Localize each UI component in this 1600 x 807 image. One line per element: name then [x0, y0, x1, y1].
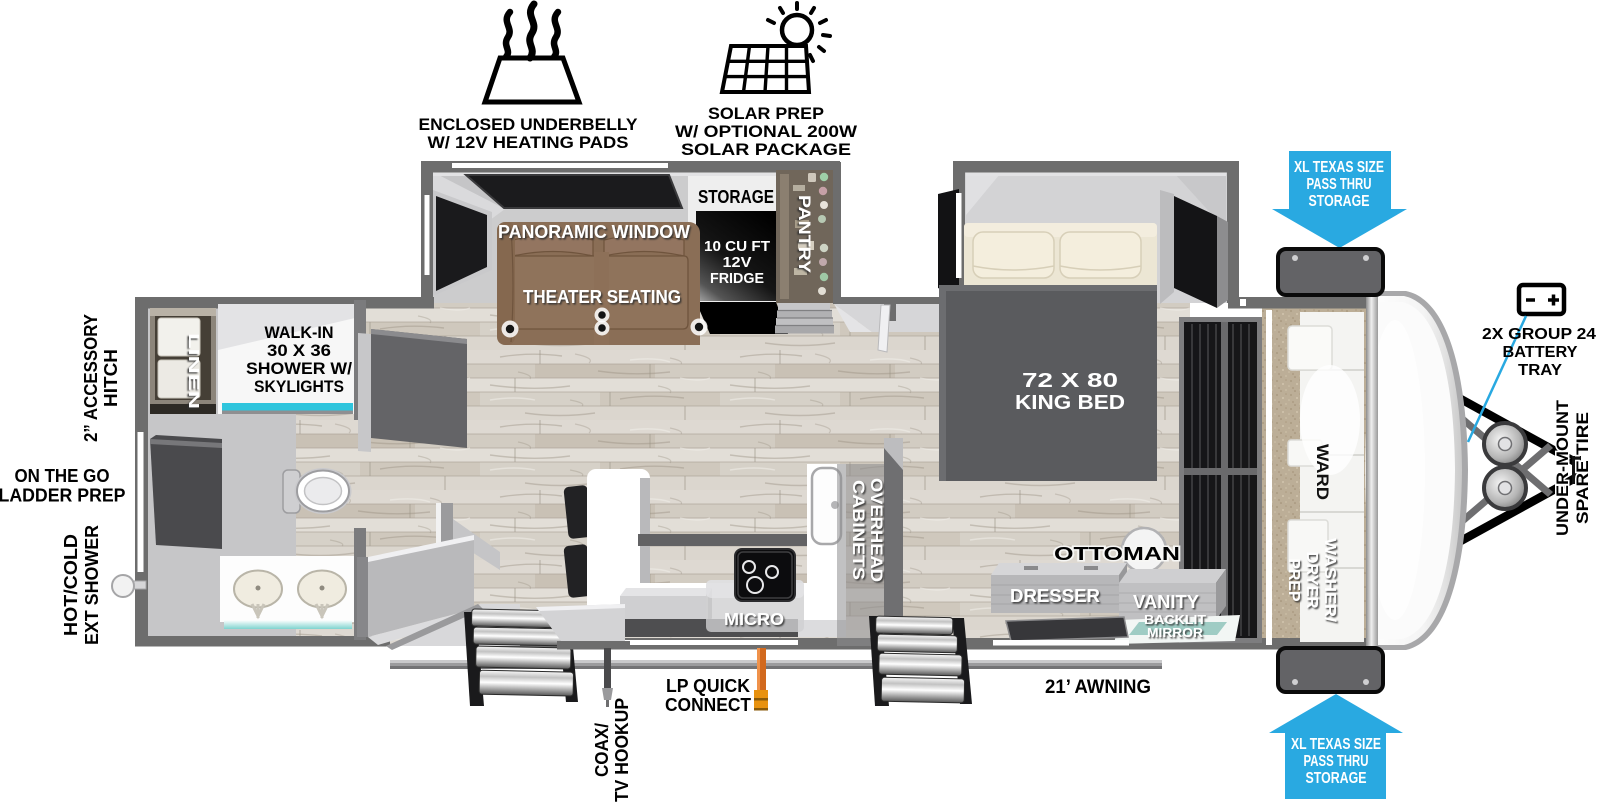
svg-text:SOLAR PACKAGE: SOLAR PACKAGE — [681, 140, 851, 159]
svg-text:XL TEXAS SIZE: XL TEXAS SIZE — [1294, 159, 1384, 176]
svg-text:PASS THRU: PASS THRU — [1304, 753, 1369, 770]
svg-text:2” ACCESSORY: 2” ACCESSORY — [81, 314, 101, 442]
svg-text:STORAGE: STORAGE — [1306, 770, 1367, 787]
svg-text:10 CU FT: 10 CU FT — [704, 238, 770, 255]
svg-text:THEATER SEATING: THEATER SEATING — [523, 286, 681, 307]
svg-text:OVERHEAD: OVERHEAD — [867, 478, 886, 582]
svg-text:LINEN: LINEN — [185, 333, 202, 409]
svg-text:SPARE TIRE: SPARE TIRE — [1573, 412, 1592, 524]
svg-text:LADDER PREP: LADDER PREP — [0, 486, 126, 506]
svg-text:HOT/COLD: HOT/COLD — [61, 534, 81, 636]
svg-text:UNDER-MOUNT: UNDER-MOUNT — [1553, 399, 1572, 536]
svg-text:PASS THRU: PASS THRU — [1307, 176, 1372, 193]
svg-text:BACKLIT: BACKLIT — [1144, 613, 1206, 627]
svg-text:PREP: PREP — [1285, 559, 1302, 602]
svg-text:30 X 36: 30 X 36 — [267, 342, 331, 360]
svg-text:MICRO: MICRO — [724, 609, 784, 629]
svg-text:VANITY: VANITY — [1133, 592, 1199, 612]
svg-text:DRYER: DRYER — [1303, 552, 1320, 609]
svg-text:SHOWER W/: SHOWER W/ — [246, 360, 352, 378]
svg-text:OTTOMAN: OTTOMAN — [1054, 544, 1180, 564]
svg-text:CONNECT: CONNECT — [665, 695, 751, 715]
svg-text:ENCLOSED UNDERBELLY: ENCLOSED UNDERBELLY — [419, 115, 639, 134]
svg-text:WALK-IN: WALK-IN — [265, 324, 334, 342]
svg-text:TV HOOKUP: TV HOOKUP — [612, 698, 632, 802]
svg-text:XL TEXAS SIZE: XL TEXAS SIZE — [1291, 736, 1381, 753]
svg-text:WARD: WARD — [1313, 444, 1332, 500]
svg-text:COAX/: COAX/ — [592, 723, 612, 777]
svg-text:W/ 12V HEATING PADS: W/ 12V HEATING PADS — [428, 133, 629, 152]
svg-text:WASHER/: WASHER/ — [1321, 538, 1338, 623]
svg-text:SKYLIGHTS: SKYLIGHTS — [254, 378, 344, 396]
svg-text:PANORAMIC WINDOW: PANORAMIC WINDOW — [498, 221, 691, 242]
svg-text:12V: 12V — [723, 254, 752, 271]
svg-text:MIRROR: MIRROR — [1147, 626, 1203, 640]
svg-text:SOLAR PREP: SOLAR PREP — [708, 104, 824, 123]
svg-text:21’ AWNING: 21’ AWNING — [1045, 676, 1151, 698]
svg-text:FRIDGE: FRIDGE — [710, 270, 764, 287]
svg-text:PANTRY: PANTRY — [795, 195, 814, 274]
svg-text:72 X 80: 72 X 80 — [1022, 369, 1118, 392]
svg-text:LP QUICK: LP QUICK — [666, 676, 750, 696]
svg-text:STORAGE: STORAGE — [698, 186, 774, 207]
svg-text:STORAGE: STORAGE — [1309, 193, 1370, 210]
svg-text:ON THE GO: ON THE GO — [15, 466, 110, 486]
svg-text:KING BED: KING BED — [1015, 391, 1125, 414]
svg-text:CABINETS: CABINETS — [849, 480, 868, 580]
svg-text:DRESSER: DRESSER — [1010, 586, 1100, 606]
svg-text:EXT SHOWER: EXT SHOWER — [82, 525, 102, 645]
svg-text:W/ OPTIONAL 200W: W/ OPTIONAL 200W — [675, 122, 858, 141]
svg-text:TRAY: TRAY — [1518, 362, 1562, 379]
svg-text:2X GROUP 24: 2X GROUP 24 — [1482, 326, 1596, 343]
svg-text:HITCH: HITCH — [101, 349, 121, 407]
svg-text:BATTERY: BATTERY — [1503, 344, 1578, 361]
